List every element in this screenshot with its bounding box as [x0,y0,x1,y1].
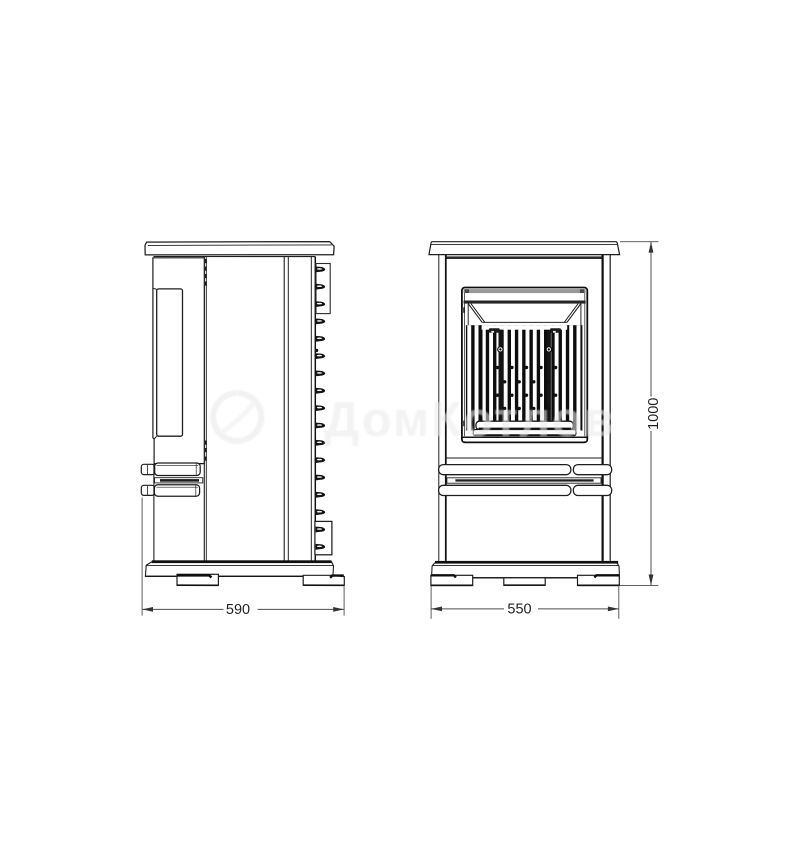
svg-text:550: 550 [507,602,531,618]
svg-text:ДомКотлов: ДомКотлов [324,393,616,447]
svg-text:1000: 1000 [646,398,662,430]
svg-text:590: 590 [226,602,250,618]
